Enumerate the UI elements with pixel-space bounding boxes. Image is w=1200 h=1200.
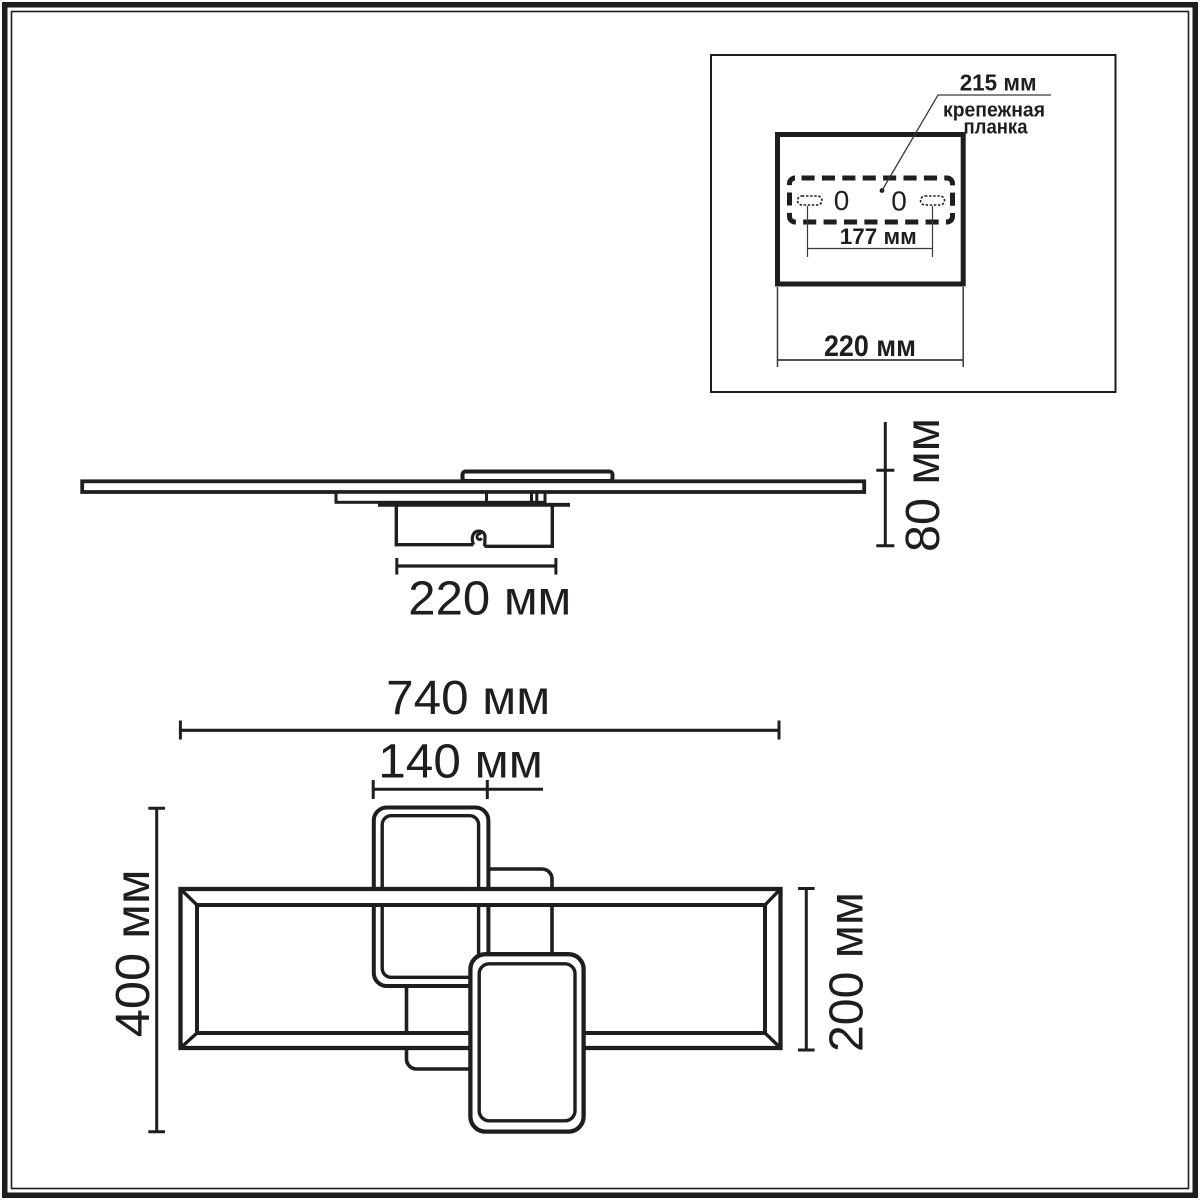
svg-text:220 мм: 220 мм [824, 330, 916, 363]
svg-text:740 мм: 740 мм [386, 672, 550, 725]
svg-text:400 мм: 400 мм [107, 869, 160, 1037]
svg-text:планка: планка [964, 117, 1029, 139]
svg-text:200 мм: 200 мм [821, 892, 874, 1052]
svg-text:80 мм: 80 мм [897, 418, 950, 552]
svg-text:0: 0 [891, 186, 907, 217]
svg-text:177 мм: 177 мм [840, 224, 917, 249]
svg-text:140 мм: 140 мм [378, 736, 543, 789]
svg-text:220 мм: 220 мм [408, 573, 571, 626]
svg-text:215 мм: 215 мм [960, 70, 1037, 96]
svg-text:0: 0 [834, 185, 850, 216]
